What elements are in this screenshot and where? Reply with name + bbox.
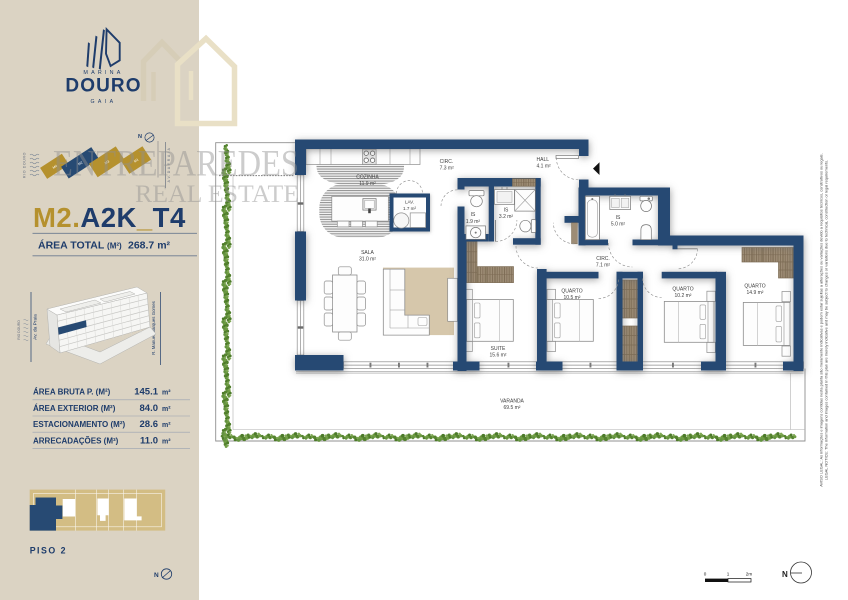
svg-text:1.7 m²: 1.7 m² (403, 206, 416, 211)
svg-text:RIO DOURO: RIO DOURO (17, 320, 21, 340)
svg-text:IS: IS (504, 208, 509, 214)
svg-text:REAL ESTATE: REAL ESTATE (135, 181, 299, 208)
svg-text:14.9 m²: 14.9 m² (747, 290, 764, 296)
svg-text:ÁREA BRUTA P. (M²): ÁREA BRUTA P. (M²) (33, 388, 111, 397)
svg-text:m²: m² (162, 422, 171, 429)
svg-text:ESTACIONAMENTO (M²): ESTACIONAMENTO (M²) (33, 420, 125, 429)
svg-text:QUARTO: QUARTO (561, 289, 582, 295)
svg-text:1: 1 (727, 572, 730, 577)
svg-text:VARANDA: VARANDA (500, 399, 524, 405)
svg-text:ÁREA EXTERIOR (M²): ÁREA EXTERIOR (M²) (33, 404, 116, 413)
svg-text:DOURO: DOURO (65, 75, 141, 96)
svg-text:PISO 2: PISO 2 (30, 546, 67, 556)
svg-text:69.5 m²: 69.5 m² (504, 405, 521, 411)
svg-text:HALL: HALL (537, 157, 550, 163)
svg-text:268.7 m²: 268.7 m² (128, 240, 171, 252)
svg-text:LAV.: LAV. (405, 200, 414, 205)
svg-text:28.6: 28.6 (140, 419, 159, 430)
svg-text:84.0: 84.0 (140, 403, 159, 414)
svg-text:QUARTO: QUARTO (744, 284, 765, 290)
svg-text:RIO DOURO: RIO DOURO (23, 152, 27, 178)
svg-text:SUITE: SUITE (491, 346, 506, 352)
svg-text:11.9 m²: 11.9 m² (359, 181, 376, 187)
svg-text:IS: IS (471, 212, 476, 218)
svg-text:N: N (138, 134, 142, 140)
svg-text:4.1 m²: 4.1 m² (537, 164, 552, 170)
svg-text:1.9 m²: 1.9 m² (466, 219, 481, 225)
svg-text:0: 0 (704, 572, 707, 577)
svg-text:10.2 m²: 10.2 m² (675, 293, 692, 299)
svg-text:QUARTO: QUARTO (672, 287, 693, 293)
svg-text:3.2 m²: 3.2 m² (499, 214, 514, 220)
svg-text:m²: m² (162, 406, 171, 413)
svg-text:145.1: 145.1 (134, 387, 158, 398)
svg-text:15.6 m²: 15.6 m² (490, 352, 507, 358)
svg-text:Av. da Praia: Av. da Praia (33, 314, 39, 340)
svg-text:7.3 m²: 7.3 m² (440, 165, 455, 171)
svg-text:CIRC.: CIRC. (596, 256, 610, 262)
svg-text:IS: IS (616, 215, 621, 221)
svg-text:GAIA: GAIA (91, 99, 117, 105)
svg-text:LEGAL NOTICE: The information: LEGAL NOTICE: The information and images… (824, 160, 829, 480)
svg-text:m²: m² (162, 438, 171, 445)
svg-text:SALA: SALA (361, 250, 374, 256)
svg-text:R. Manuel Marques Gomes: R. Manuel Marques Gomes (151, 300, 156, 354)
svg-text:ENTREPAREDES: ENTREPAREDES (53, 143, 299, 184)
svg-text:COZINHA: COZINHA (356, 174, 379, 180)
svg-text:7.1 m²: 7.1 m² (596, 262, 611, 268)
svg-text:m²: m² (162, 390, 171, 397)
svg-text:N: N (782, 570, 788, 579)
svg-text:31.0 m²: 31.0 m² (359, 256, 376, 262)
svg-text:11.0: 11.0 (140, 435, 158, 446)
svg-text:ARRECADAÇÕES (M³): ARRECADAÇÕES (M³) (33, 436, 119, 445)
svg-text:5.0 m²: 5.0 m² (611, 221, 626, 227)
svg-text:2m: 2m (746, 572, 753, 577)
svg-text:10.5 m²: 10.5 m² (564, 295, 581, 301)
svg-text:CIRC.: CIRC. (440, 159, 454, 165)
svg-text:N: N (154, 572, 159, 579)
